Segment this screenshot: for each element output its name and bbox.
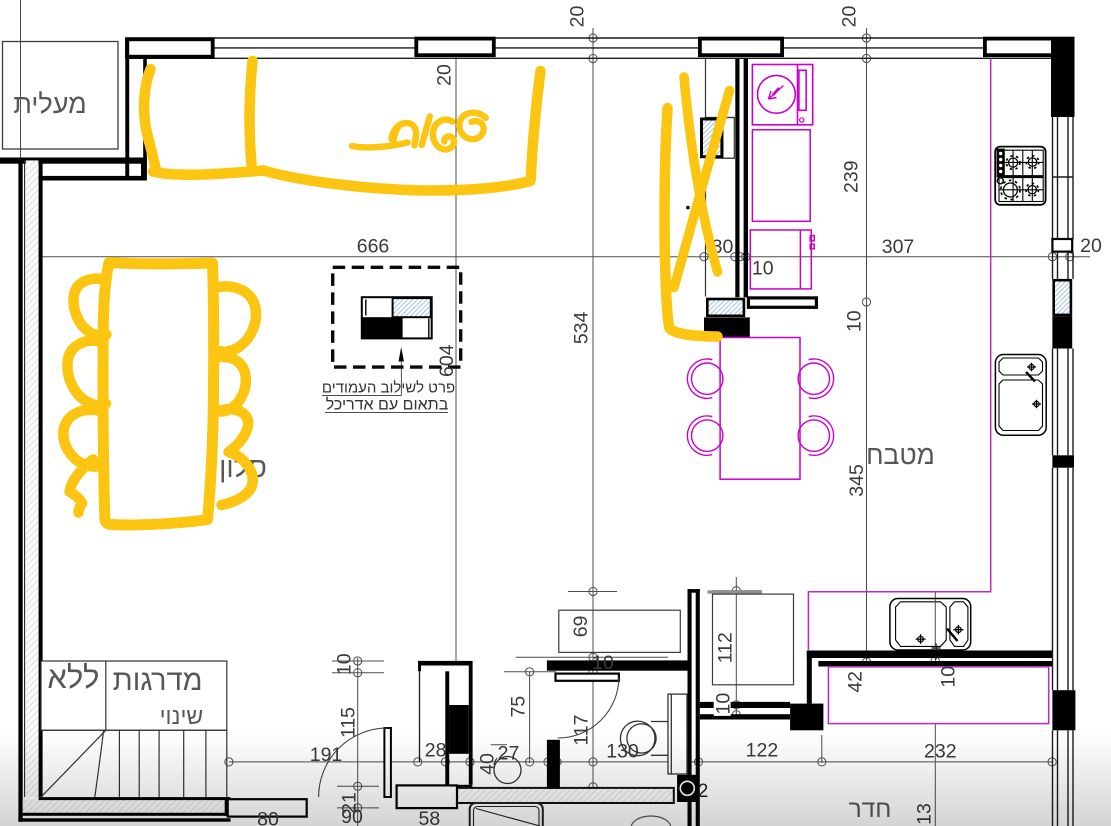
svg-text:112: 112 [714, 632, 736, 663]
svg-text:בתאום עם אדריכל: בתאום עם אדריכל [326, 396, 449, 414]
svg-text:239: 239 [841, 160, 863, 193]
svg-text:75: 75 [507, 696, 529, 718]
svg-text:604: 604 [436, 344, 458, 377]
svg-text:10: 10 [752, 258, 774, 280]
svg-text:69: 69 [570, 616, 592, 638]
svg-text:20: 20 [1080, 235, 1102, 257]
svg-text:666: 666 [357, 236, 390, 258]
svg-text:ללא: ללא [47, 660, 99, 695]
svg-text:345: 345 [846, 464, 868, 497]
svg-text:10: 10 [592, 652, 614, 674]
svg-text:20: 20 [567, 6, 589, 28]
svg-text:מטבח: מטבח [866, 440, 935, 470]
svg-text:מעלית: מעלית [13, 89, 86, 119]
svg-text:10: 10 [333, 653, 355, 675]
svg-text:534: 534 [570, 311, 592, 344]
svg-text:מדרגות: מדרגות [113, 665, 203, 697]
svg-text:10: 10 [844, 310, 866, 332]
svg-text:42: 42 [844, 671, 866, 693]
svg-text:10: 10 [938, 666, 960, 688]
svg-text:307: 307 [882, 236, 915, 258]
svg-text:שינוי: שינוי [160, 703, 204, 729]
svg-text:20: 20 [839, 6, 861, 28]
svg-text:פרט לשילוב העמודים: פרט לשילוב העמודים [322, 380, 455, 397]
svg-text:10: 10 [712, 693, 734, 715]
svg-text:20: 20 [434, 64, 456, 86]
